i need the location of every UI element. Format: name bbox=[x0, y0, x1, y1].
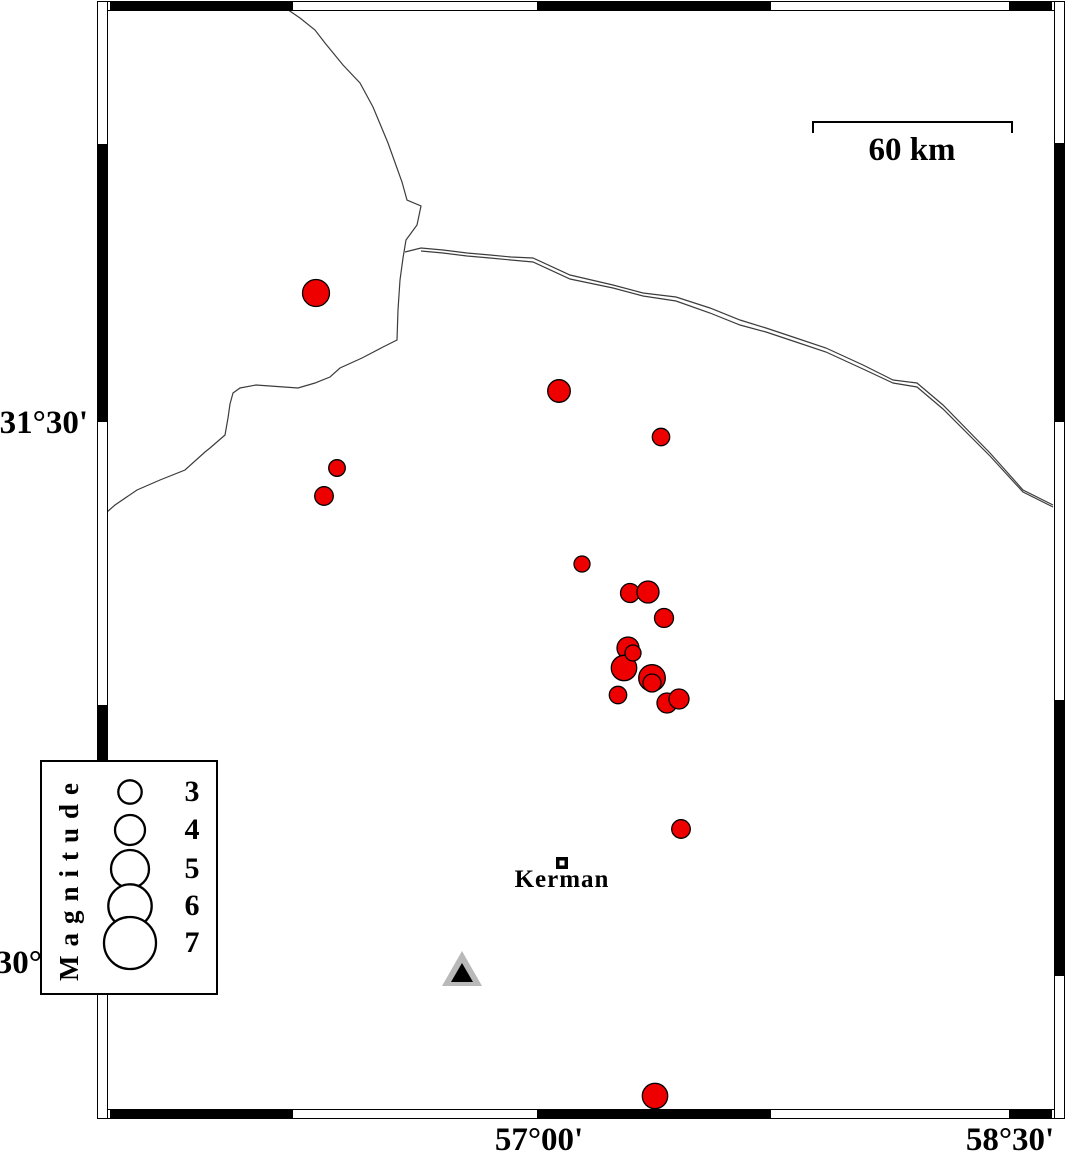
earthquake-marker bbox=[672, 820, 691, 839]
frame-tick-top bbox=[537, 1, 771, 11]
boundary-line bbox=[107, 3, 421, 512]
seismicity-map-page: 31°30' 30° 57°00' 58°30' 60 km Kerman Ma… bbox=[0, 0, 1066, 1158]
magnitude-legend: Magnitude 3 4 5 6 7 bbox=[40, 760, 218, 995]
legend-magnitude-circle bbox=[118, 780, 141, 803]
earthquake-marker bbox=[642, 1083, 667, 1108]
frame-tick-right bbox=[1054, 700, 1065, 976]
boundary-line bbox=[405, 248, 1053, 505]
legend-value-3: 3 bbox=[172, 775, 212, 809]
frame-tick-bottom bbox=[1009, 1109, 1052, 1119]
earthquake-marker bbox=[625, 645, 641, 661]
longitude-label-57-00: 57°00' bbox=[469, 1122, 609, 1158]
earthquake-marker bbox=[574, 556, 590, 572]
city-label-kerman: Kerman bbox=[492, 866, 632, 894]
frame-tick-right bbox=[1054, 143, 1065, 422]
earthquake-marker bbox=[655, 609, 674, 628]
legend-magnitude-circle bbox=[115, 815, 145, 845]
legend-value-7: 7 bbox=[172, 926, 212, 960]
earthquake-marker bbox=[609, 686, 626, 703]
longitude-label-58-30: 58°30' bbox=[940, 1122, 1066, 1158]
city-marker-inner bbox=[560, 861, 565, 866]
frame-tick-left bbox=[97, 144, 108, 422]
latitude-label-31-30: 31°30' bbox=[0, 405, 88, 441]
latitude-label-30: 30° bbox=[0, 945, 42, 981]
legend-value-5: 5 bbox=[172, 852, 212, 886]
legend-value-6: 6 bbox=[172, 889, 212, 923]
boundary-line bbox=[421, 251, 1053, 507]
frame-tick-top bbox=[110, 1, 293, 11]
legend-value-4: 4 bbox=[172, 813, 212, 847]
earthquake-marker bbox=[548, 380, 571, 403]
legend-title: Magnitude bbox=[52, 768, 86, 987]
earthquake-marker bbox=[669, 689, 689, 709]
earthquake-marker bbox=[329, 460, 346, 477]
frame-tick-top bbox=[1009, 1, 1052, 11]
legend-magnitude-circle bbox=[111, 850, 149, 888]
earthquake-marker bbox=[643, 674, 661, 692]
earthquake-marker bbox=[303, 280, 330, 307]
earthquake-marker bbox=[315, 487, 334, 506]
legend-magnitude-circle bbox=[104, 917, 156, 969]
frame-tick-bottom bbox=[537, 1109, 771, 1119]
earthquake-marker bbox=[637, 581, 659, 603]
scale-bar-label: 60 km bbox=[842, 132, 982, 169]
earthquake-marker bbox=[652, 428, 669, 445]
frame-tick-bottom bbox=[110, 1109, 293, 1119]
